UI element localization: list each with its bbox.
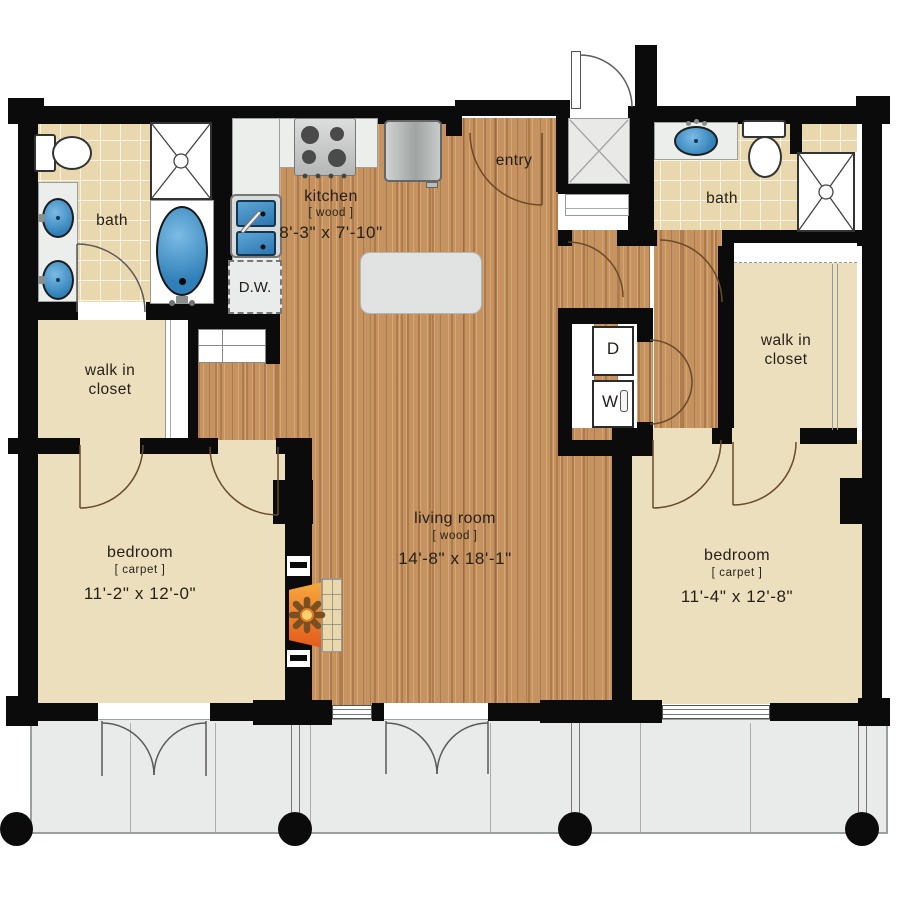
- toilet-bowl-icon: [52, 136, 92, 170]
- floor-plan: D.W. D W bath kitchen [ wood ] 8'-3" x 7…: [0, 0, 900, 900]
- wall: [140, 438, 218, 454]
- column: [558, 812, 592, 846]
- balcony-joint: [640, 723, 641, 832]
- wall: [637, 422, 653, 456]
- bedroom-right-floor-type: [ carpet ]: [712, 567, 763, 579]
- wall: [188, 318, 198, 440]
- wall: [372, 703, 384, 721]
- stove-icon: [294, 118, 356, 176]
- wall: [840, 478, 862, 524]
- closet-right-label-line1: walk in: [761, 332, 811, 350]
- balcony-joint: [490, 723, 491, 832]
- column-post-line: [291, 723, 292, 815]
- living-room-dimensions: 14'-8" x 18'-1": [398, 549, 512, 569]
- fireplace-niche-bar: [290, 655, 307, 661]
- bedroom-left-dimensions: 11'-2" x 12'-0": [84, 584, 196, 604]
- balcony-joint: [215, 723, 216, 832]
- entry-door-leaf: [571, 51, 581, 109]
- hall-center-floor: [558, 236, 650, 308]
- dishwasher-label: D.W.: [239, 279, 272, 296]
- wall: [635, 45, 657, 107]
- sink-icon: [42, 198, 74, 238]
- closet-rod-line: [170, 320, 171, 438]
- wall: [628, 106, 654, 236]
- wall: [718, 238, 734, 430]
- closet-right-rod: [832, 264, 838, 430]
- living-room-floor-west: [280, 320, 310, 440]
- window: [332, 705, 372, 719]
- wall: [18, 703, 98, 721]
- washer-label: W: [602, 392, 618, 412]
- wall: [558, 230, 572, 246]
- sink-icon: [42, 260, 74, 300]
- wall: [617, 230, 657, 246]
- fireplace-firebox: [289, 582, 323, 648]
- fireplace-hearth: [321, 578, 342, 652]
- stove-burner: [301, 126, 319, 144]
- bathtub-drain: [179, 278, 186, 285]
- shelf-line: [222, 330, 223, 362]
- wall: [18, 302, 78, 320]
- wall: [800, 428, 857, 444]
- shower-icon: [797, 152, 855, 232]
- shower-icon: [150, 122, 212, 200]
- wall: [18, 438, 80, 454]
- column-post-line: [579, 723, 580, 815]
- shelf-line: [199, 345, 265, 346]
- column-post-line: [866, 723, 867, 815]
- kitchen-sink-basin: [236, 200, 276, 227]
- closet-left-label-line2: closet: [89, 381, 132, 399]
- fridge-icon: [384, 120, 442, 182]
- wall: [712, 428, 732, 444]
- balcony-door-threshold: [384, 703, 488, 719]
- stove-burner: [330, 127, 344, 141]
- bath-right-label: bath: [706, 190, 738, 208]
- wall: [770, 703, 882, 721]
- faucet-icon: [686, 121, 691, 126]
- shelf-line: [566, 208, 628, 209]
- linen-shelves: [198, 329, 266, 363]
- fireplace-niche-bar: [290, 562, 307, 568]
- bathtub-handle: [169, 300, 175, 306]
- wall: [637, 308, 653, 342]
- wall: [540, 700, 662, 723]
- door-threshold: [218, 440, 276, 454]
- column: [845, 812, 879, 846]
- bathtub-handle: [189, 300, 195, 306]
- door-threshold: [732, 428, 800, 444]
- column-post-line: [571, 723, 572, 815]
- column: [278, 812, 312, 846]
- column: [0, 812, 33, 846]
- wall: [18, 106, 38, 722]
- living-room-label: living room: [414, 510, 496, 528]
- wall: [253, 700, 332, 725]
- dryer-label: D: [607, 339, 619, 359]
- door-threshold: [80, 438, 140, 454]
- hall-right-floor: [654, 246, 718, 428]
- door-threshold: [657, 230, 722, 246]
- balcony-door-threshold: [98, 703, 210, 719]
- door-threshold: [78, 302, 146, 320]
- window: [662, 705, 770, 719]
- wall: [266, 318, 280, 364]
- balcony-joint: [310, 723, 311, 832]
- wall: [790, 122, 802, 154]
- column-post-line: [299, 723, 300, 815]
- wall: [210, 703, 256, 721]
- closet-left-label-line1: walk in: [85, 362, 135, 380]
- closet-right-shelf: [734, 243, 857, 263]
- bath-left-label: bath: [96, 212, 128, 230]
- bedroom-left-label: bedroom: [107, 544, 173, 562]
- faucet-icon: [38, 276, 45, 284]
- column-post-line: [858, 723, 859, 815]
- closet-right-label-line2: closet: [765, 351, 808, 369]
- balcony-joint: [750, 723, 751, 832]
- wall: [455, 100, 559, 116]
- bath-right-floor-shower-strip: [800, 122, 857, 152]
- wall: [488, 703, 540, 721]
- kitchen-island: [360, 252, 482, 314]
- door-threshold: [653, 428, 712, 444]
- wall: [558, 308, 572, 456]
- washer-door: [620, 390, 628, 412]
- balcony-joint: [130, 723, 131, 832]
- wall: [612, 440, 632, 721]
- bedroom-right-dimensions: 11'-4" x 12'-8": [681, 587, 793, 607]
- kitchen-floor-type: [ wood ]: [308, 207, 353, 219]
- fridge-handle: [426, 182, 438, 188]
- kitchen-dimensions: 8'-3" x 7'-10": [279, 223, 383, 243]
- bedroom-left-floor-type: [ carpet ]: [115, 564, 166, 576]
- bedroom-right-label: bedroom: [704, 547, 770, 565]
- wall: [862, 106, 882, 724]
- door-threshold: [637, 342, 653, 422]
- entry-coat-shelf: [565, 194, 629, 216]
- sink-icon: [674, 126, 718, 156]
- bathtub-faucet-icon: [176, 296, 188, 303]
- toilet-bowl-icon: [748, 136, 782, 178]
- closet-left-shelf: [165, 320, 188, 438]
- entry-label: entry: [496, 152, 532, 170]
- kitchen-sink-basin: [236, 231, 276, 256]
- laundry-closet-floor: [572, 324, 594, 428]
- stove-burner: [302, 150, 316, 164]
- balcony: [30, 718, 888, 834]
- faucet-icon: [694, 119, 699, 124]
- stove-burner: [328, 149, 346, 167]
- faucet-icon: [702, 121, 707, 126]
- living-room-floor-type: [ wood ]: [432, 530, 477, 542]
- faucet-icon: [38, 214, 45, 222]
- fireplace-flue-block: [273, 480, 313, 524]
- door-threshold: [572, 230, 617, 246]
- kitchen-label: kitchen: [304, 188, 358, 206]
- utility-shaft: [568, 118, 630, 184]
